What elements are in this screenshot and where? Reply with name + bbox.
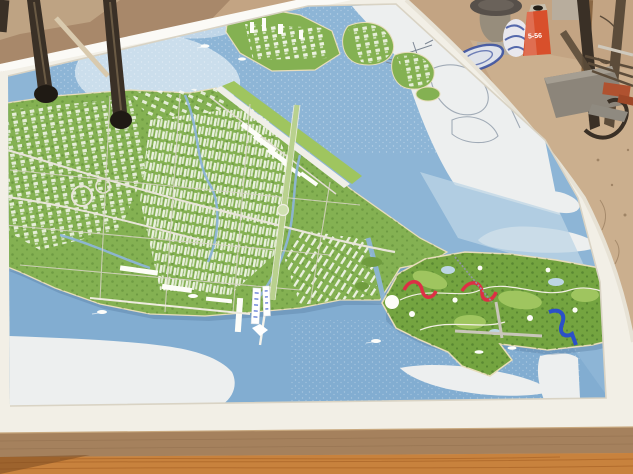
- boat: [238, 57, 246, 60]
- boat: [475, 350, 484, 354]
- table-edge: [0, 427, 633, 474]
- leg-foot: [110, 111, 132, 129]
- white-landmass-southeast: [538, 353, 580, 400]
- leg-foot: [34, 85, 58, 103]
- roundabout: [278, 205, 289, 216]
- photo-urban-model-on-table: 5-56: [0, 0, 633, 474]
- boat: [508, 346, 517, 350]
- bridge-sign: [251, 288, 261, 324]
- bridge-sign: [263, 286, 271, 316]
- scene: 5-56: [0, 0, 633, 474]
- boat: [188, 294, 198, 298]
- can-label-text: 5-56: [528, 33, 543, 41]
- district-east-rows: [285, 230, 378, 305]
